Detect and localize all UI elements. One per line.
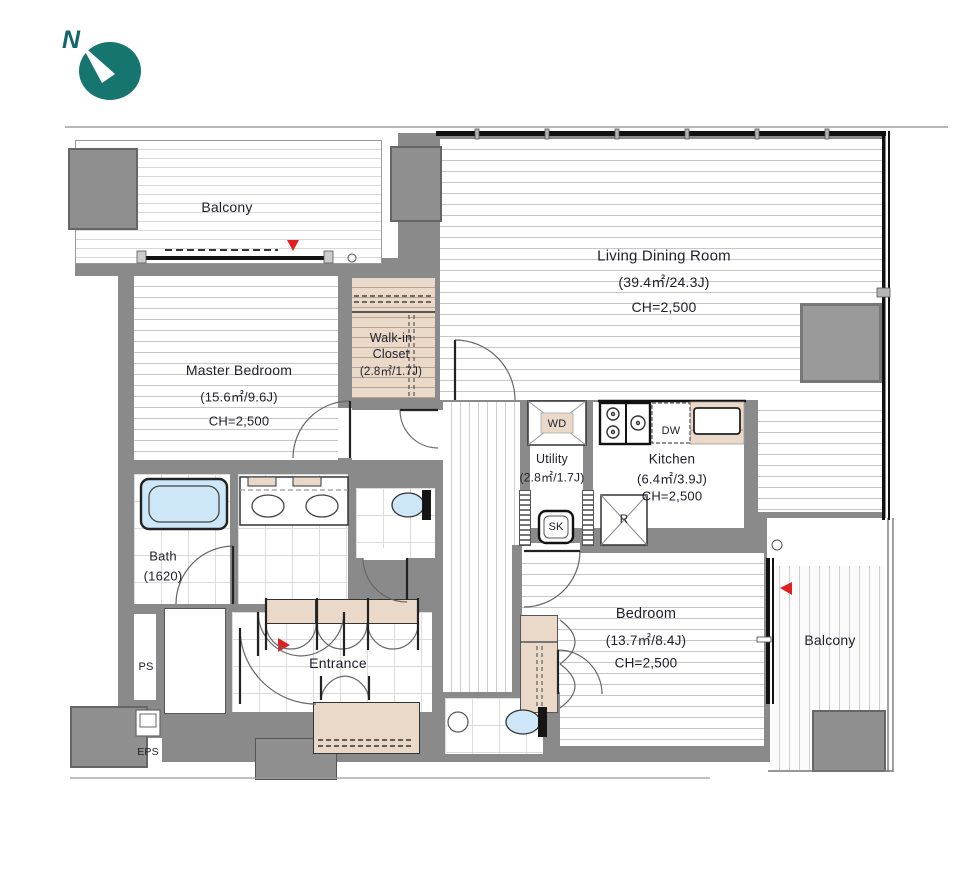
shaft-ps	[134, 614, 156, 700]
bath-size: (1620)	[144, 569, 183, 584]
refrigerator-label: R	[620, 514, 629, 526]
master-bedroom-name: Master Bedroom	[186, 362, 292, 378]
entrance-alcove	[164, 608, 226, 714]
living-dining-area: (39.4㎡/24.3J)	[618, 272, 709, 292]
living-dining-name: Living Dining Room	[597, 248, 731, 265]
corridor-floor	[443, 402, 520, 692]
kitchen-area: (6.4㎡/3.9J)	[637, 469, 707, 488]
utility-area: (2.8㎡/1.7J)	[520, 469, 585, 486]
eps-label: EPS	[137, 746, 159, 758]
kitchen-name: Kitchen	[649, 452, 695, 467]
pillar	[800, 303, 882, 383]
ps-label: PS	[138, 661, 153, 673]
master-bedroom-ceiling: CH=2,500	[209, 414, 270, 429]
walk-in-closet-name-2: Closet	[373, 347, 410, 361]
utility-name: Utility	[536, 452, 568, 466]
bedroom-ceiling: CH=2,500	[615, 656, 678, 671]
room-washroom-floor	[238, 474, 348, 604]
bedroom-closet	[520, 615, 558, 713]
sliding-door-utility	[519, 490, 531, 546]
sliding-door-kitchen	[582, 490, 594, 546]
slop-sink-label: SK	[548, 521, 563, 533]
room-dining-extension-floor	[758, 400, 884, 512]
floor-plan: N	[0, 0, 954, 878]
bedroom-area: (13.7㎡/8.4J)	[606, 629, 686, 649]
balcony-right-upper	[766, 518, 884, 566]
master-bedroom-door-gap	[338, 408, 352, 458]
pillar	[70, 706, 148, 768]
room-bath-floor	[134, 474, 230, 604]
pillar	[390, 146, 442, 222]
shoe-closet-top	[317, 599, 368, 624]
bath-name: Bath	[149, 549, 177, 564]
master-bedroom-area: (15.6㎡/9.6J)	[200, 387, 278, 406]
compass-icon	[74, 38, 148, 106]
washer-dryer-label: WD	[548, 418, 567, 430]
shoe-closet-top	[266, 599, 316, 624]
entrance-name: Entrance	[309, 655, 367, 671]
hall-floor	[352, 410, 443, 460]
dishwasher-label: DW	[662, 425, 681, 437]
pillar	[68, 148, 138, 230]
pillar	[812, 710, 886, 772]
kitchen-ceiling: CH=2,500	[642, 489, 703, 504]
living-dining-ceiling: CH=2,500	[631, 299, 696, 315]
balcony-right-label: Balcony	[804, 632, 855, 648]
wc-top-door-gap	[363, 548, 407, 560]
bedroom-name: Bedroom	[616, 606, 676, 622]
walk-in-closet-name-1: Walk-in	[370, 331, 413, 345]
shoe-closet-bottom	[313, 702, 420, 754]
shoe-closet-top	[368, 599, 418, 624]
walk-in-closet-area: (2.8㎡/1.7J)	[360, 363, 422, 379]
balcony-top-label: Balcony	[201, 199, 252, 215]
